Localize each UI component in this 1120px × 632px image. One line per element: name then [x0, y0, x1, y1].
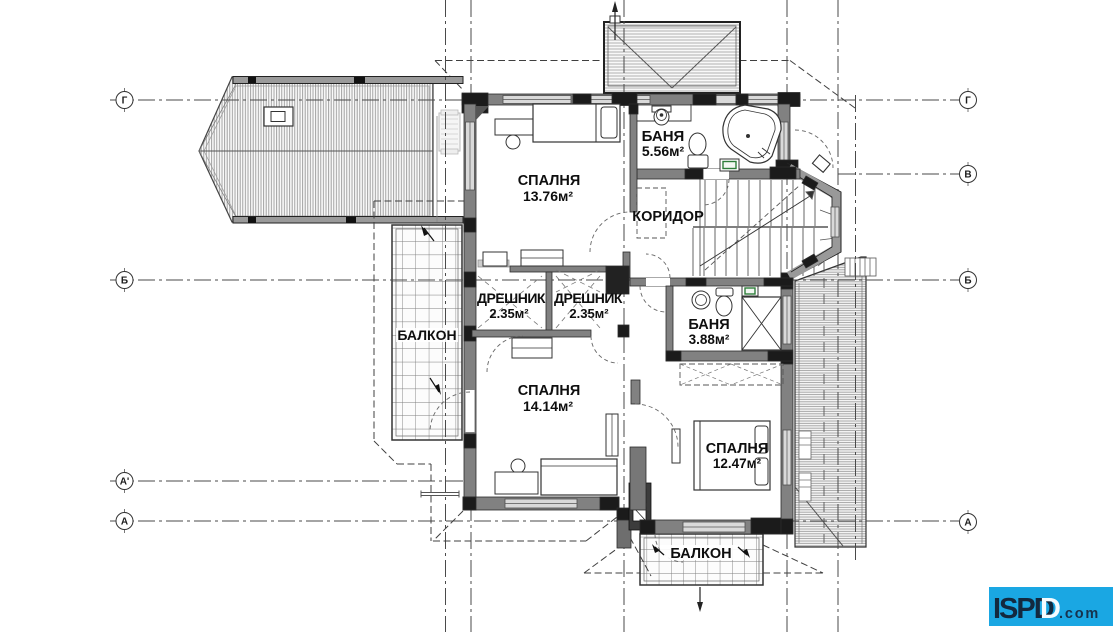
svg-text:D: D	[1040, 593, 1061, 625]
svg-text:ДРЕШНИК: ДРЕШНИК	[477, 290, 546, 306]
svg-text:Б: Б	[121, 276, 128, 287]
svg-text:А: А	[964, 518, 971, 529]
svg-text:А: А	[121, 517, 128, 528]
svg-text:БАЛКОН: БАЛКОН	[670, 546, 731, 562]
svg-text:Г: Г	[122, 96, 128, 107]
svg-text:12.47м²: 12.47м²	[713, 456, 762, 471]
svg-text:ДРЕШНИК: ДРЕШНИК	[554, 290, 623, 306]
svg-text:3.88м²: 3.88м²	[689, 332, 730, 347]
svg-text:2.35м²: 2.35м²	[489, 306, 529, 321]
svg-text:А': А'	[120, 477, 130, 488]
svg-text:СПАЛНЯ: СПАЛНЯ	[518, 383, 581, 399]
svg-text:Г: Г	[965, 96, 971, 107]
svg-text:13.76м²: 13.76м²	[523, 188, 573, 204]
svg-text:Б: Б	[964, 276, 971, 287]
svg-text:СПАЛНЯ: СПАЛНЯ	[518, 173, 581, 189]
svg-text:2.35м²: 2.35м²	[569, 306, 609, 321]
svg-text:.com: .com	[1059, 606, 1100, 622]
svg-text:БАНЯ: БАНЯ	[688, 317, 729, 333]
svg-text:В: В	[964, 170, 971, 181]
svg-text:5.56м²: 5.56м²	[642, 143, 685, 159]
svg-text:БАЛКОН: БАЛКОН	[397, 327, 456, 343]
svg-text:СПАЛНЯ: СПАЛНЯ	[706, 441, 769, 457]
svg-text:КОРИДОР: КОРИДОР	[632, 209, 704, 225]
svg-text:14.14м²: 14.14м²	[523, 398, 573, 414]
